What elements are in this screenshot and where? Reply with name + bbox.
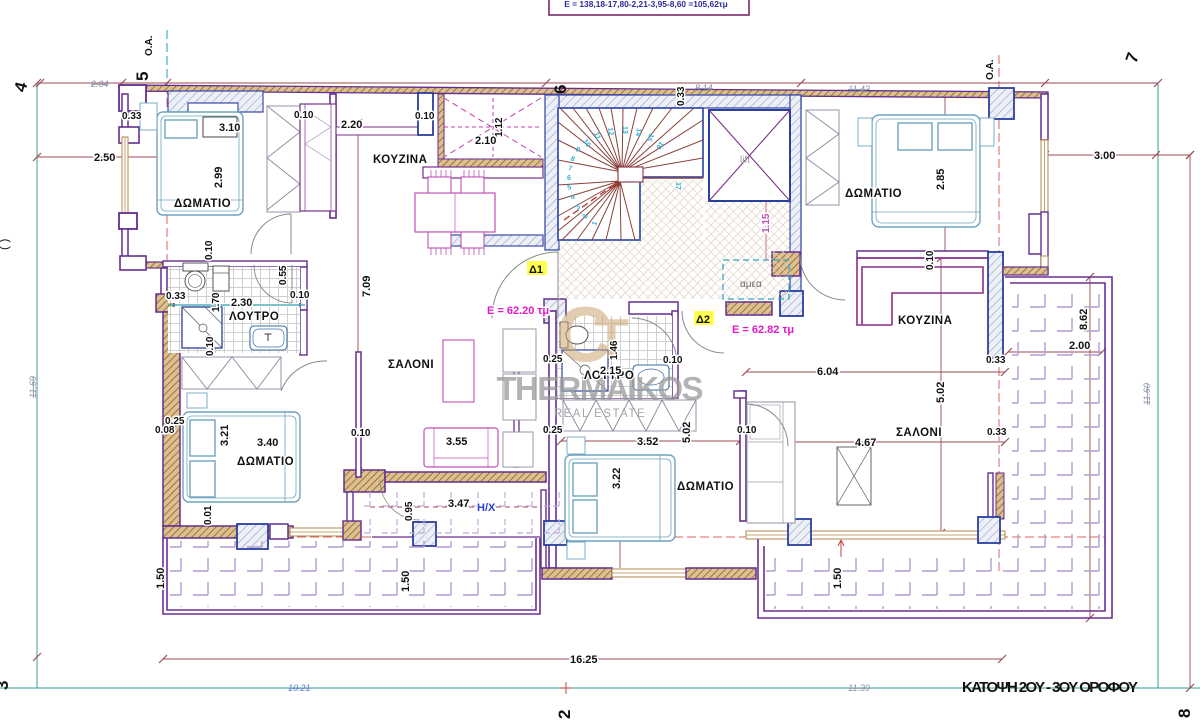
svg-text:0.10: 0.10 bbox=[415, 111, 435, 122]
svg-text:2.85: 2.85 bbox=[935, 169, 947, 190]
svg-text:0.01: 0.01 bbox=[203, 505, 214, 525]
svg-text:14: 14 bbox=[634, 128, 642, 137]
svg-text:6: 6 bbox=[567, 175, 571, 182]
svg-text:8: 8 bbox=[1175, 709, 1194, 718]
svg-text:2.20: 2.20 bbox=[341, 119, 362, 131]
svg-text:0.08: 0.08 bbox=[155, 425, 175, 436]
svg-text:ΔΩΜΑΤΙΟ: ΔΩΜΑΤΙΟ bbox=[237, 456, 294, 468]
svg-text:0.33: 0.33 bbox=[166, 291, 186, 302]
svg-text:8.62: 8.62 bbox=[1078, 309, 1090, 330]
svg-text:2.30: 2.30 bbox=[231, 297, 252, 309]
svg-text:0.95: 0.95 bbox=[404, 501, 415, 521]
svg-text:ΔΩΜΑΤΙΟ: ΔΩΜΑΤΙΟ bbox=[174, 198, 231, 210]
svg-text:0.25: 0.25 bbox=[543, 425, 563, 436]
svg-text:T: T bbox=[594, 307, 629, 371]
svg-text:0.25: 0.25 bbox=[543, 354, 563, 365]
svg-text:lift: lift bbox=[740, 155, 750, 166]
svg-text:( ): ( ) bbox=[0, 239, 11, 250]
svg-text:αμεα: αμεα bbox=[740, 279, 762, 290]
svg-text:7.09: 7.09 bbox=[361, 276, 373, 297]
svg-text:1.15: 1.15 bbox=[761, 213, 772, 233]
svg-text:2.50: 2.50 bbox=[94, 152, 115, 164]
svg-text:Ε = 62.82 τμ: Ε = 62.82 τμ bbox=[732, 324, 794, 336]
svg-text:5.02: 5.02 bbox=[681, 422, 693, 443]
svg-text:0.10: 0.10 bbox=[663, 355, 683, 366]
svg-text:1.70: 1.70 bbox=[211, 292, 222, 312]
svg-text:ΚΟΥΖΙΝΑ: ΚΟΥΖΙΝΑ bbox=[373, 154, 427, 166]
svg-text:ΔΩΜΑΤΙΟ: ΔΩΜΑΤΙΟ bbox=[677, 481, 734, 493]
svg-text:0.10: 0.10 bbox=[737, 425, 757, 436]
svg-text:H/X: H/X bbox=[477, 502, 496, 514]
svg-text:5: 5 bbox=[133, 72, 152, 81]
svg-text:0.10: 0.10 bbox=[925, 250, 936, 270]
svg-text:13: 13 bbox=[621, 126, 628, 134]
svg-text:3.47: 3.47 bbox=[448, 498, 469, 510]
svg-text:1.50: 1.50 bbox=[832, 568, 844, 589]
svg-text:3.10: 3.10 bbox=[219, 122, 240, 134]
svg-text:0.10: 0.10 bbox=[351, 428, 371, 439]
svg-text:8.14: 8.14 bbox=[695, 83, 713, 93]
svg-text:1.50: 1.50 bbox=[400, 571, 412, 592]
svg-text:6.04: 6.04 bbox=[817, 366, 839, 378]
svg-text:2.15: 2.15 bbox=[600, 365, 621, 377]
svg-text:17: 17 bbox=[674, 182, 681, 190]
svg-text:5.02: 5.02 bbox=[935, 382, 947, 403]
svg-text:0.10: 0.10 bbox=[294, 110, 314, 121]
svg-text:0.10: 0.10 bbox=[204, 240, 215, 260]
svg-text:2.04: 2.04 bbox=[90, 79, 109, 89]
svg-text:4.67: 4.67 bbox=[855, 437, 876, 449]
svg-text:3.00: 3.00 bbox=[1094, 150, 1115, 162]
svg-text:0.55: 0.55 bbox=[278, 265, 289, 285]
svg-text:0.33: 0.33 bbox=[986, 355, 1006, 366]
svg-text:0.33: 0.33 bbox=[676, 86, 687, 106]
svg-text:11.60: 11.60 bbox=[1142, 383, 1152, 405]
svg-text:3.52: 3.52 bbox=[637, 436, 658, 448]
svg-text:3.21: 3.21 bbox=[219, 425, 231, 446]
svg-text:1.12: 1.12 bbox=[494, 117, 505, 137]
svg-text:0.10: 0.10 bbox=[205, 336, 216, 356]
svg-text:12: 12 bbox=[606, 127, 614, 136]
svg-text:3.22: 3.22 bbox=[611, 468, 623, 489]
svg-text:11.39: 11.39 bbox=[848, 683, 870, 693]
svg-text:2.00: 2.00 bbox=[1069, 340, 1090, 352]
svg-text:3.40: 3.40 bbox=[257, 437, 278, 449]
svg-text:Ο.Α.: Ο.Α. bbox=[985, 59, 996, 80]
svg-text:11.69: 11.69 bbox=[28, 376, 38, 398]
svg-text:1.50: 1.50 bbox=[155, 568, 167, 589]
svg-text:3: 3 bbox=[0, 681, 12, 690]
svg-text:0.33: 0.33 bbox=[122, 111, 142, 122]
svg-text:REAL ESTATE: REAL ESTATE bbox=[554, 408, 646, 420]
svg-text:0.10: 0.10 bbox=[290, 290, 310, 301]
svg-text:2.99: 2.99 bbox=[213, 167, 225, 188]
svg-text:11.42: 11.42 bbox=[848, 84, 870, 94]
svg-text:6: 6 bbox=[551, 85, 570, 94]
svg-text:Δ2: Δ2 bbox=[696, 314, 710, 326]
svg-text:ΔΩΜΑΤΙΟ: ΔΩΜΑΤΙΟ bbox=[845, 188, 902, 200]
svg-text:ΛΟΥΤΡΟ: ΛΟΥΤΡΟ bbox=[229, 311, 279, 323]
svg-text:ΣΑΛΟΝΙ: ΣΑΛΟΝΙ bbox=[388, 359, 434, 371]
svg-text:0.33: 0.33 bbox=[987, 427, 1007, 438]
svg-text:Ο.Α.: Ο.Α. bbox=[144, 35, 155, 56]
svg-text:2: 2 bbox=[555, 710, 574, 719]
svg-text:Ε = 62.20 τμ: Ε = 62.20 τμ bbox=[487, 305, 549, 317]
svg-text:1.46: 1.46 bbox=[609, 340, 620, 360]
svg-text:16.25: 16.25 bbox=[570, 654, 598, 666]
svg-text:ΚΟΥΖΙΝΑ: ΚΟΥΖΙΝΑ bbox=[898, 315, 952, 327]
svg-text:Δ1: Δ1 bbox=[529, 264, 543, 276]
svg-text:ΣΑΛΟΝΙ: ΣΑΛΟΝΙ bbox=[896, 427, 942, 439]
svg-text:3.55: 3.55 bbox=[446, 436, 467, 448]
svg-text:10.21: 10.21 bbox=[288, 683, 311, 693]
svg-text:Ε = 138,18-17,80-2,21-3,95-8,6: Ε = 138,18-17,80-2,21-3,95-8,60 =105,62τ… bbox=[564, 0, 727, 9]
svg-text:ΚΑΤΟΨΗ 2ΟΥ - 3ΟΥ ΟΡΟΦΟΥ: ΚΑΤΟΨΗ 2ΟΥ - 3ΟΥ ΟΡΟΦΟΥ bbox=[962, 679, 1138, 696]
